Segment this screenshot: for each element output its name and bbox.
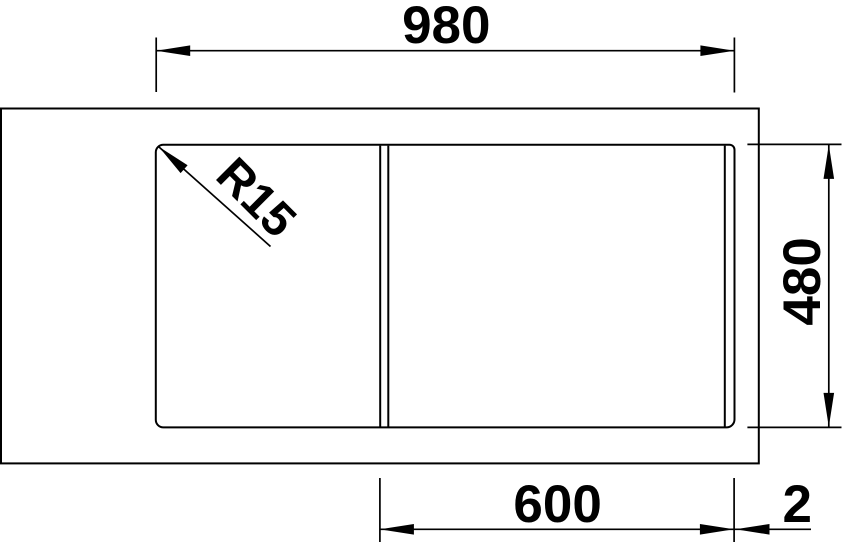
svg-text:480: 480	[773, 237, 832, 325]
svg-text:980: 980	[402, 0, 490, 55]
svg-text:600: 600	[513, 475, 601, 534]
svg-text:2: 2	[782, 475, 811, 534]
